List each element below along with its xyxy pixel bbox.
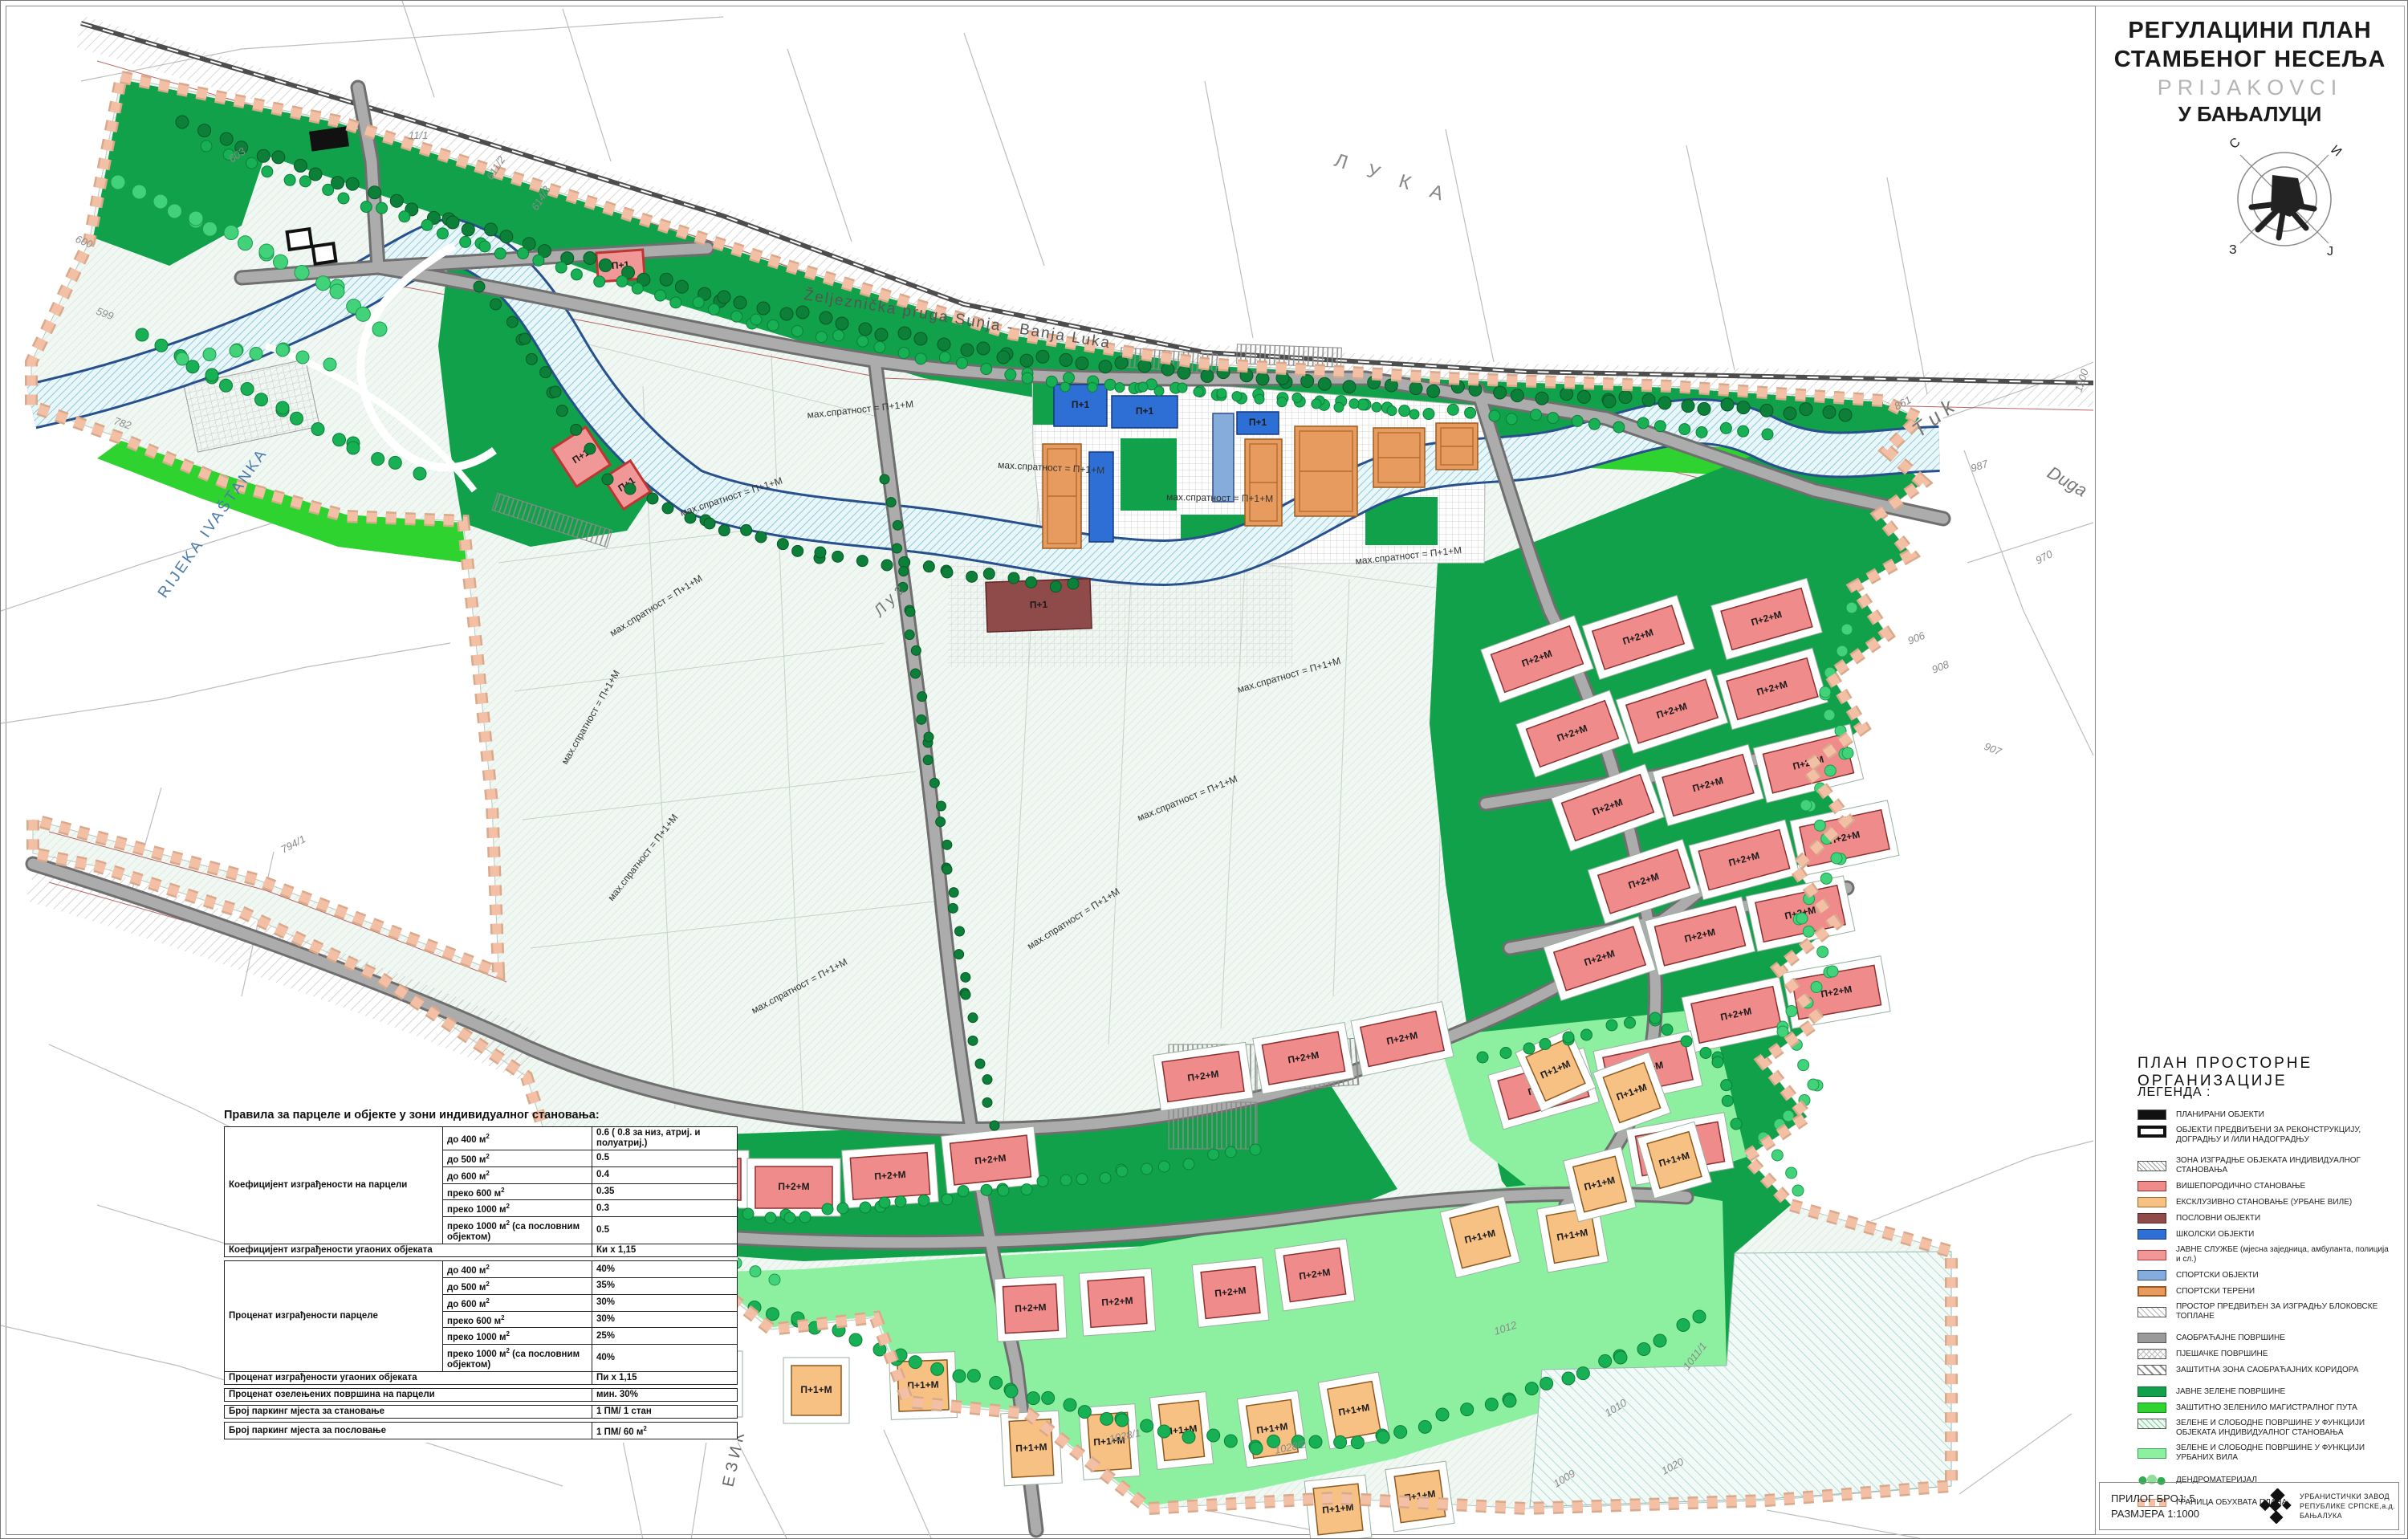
tree-symbol	[1658, 397, 1671, 409]
tree-symbol	[1548, 413, 1559, 424]
tree-symbol	[1525, 1382, 1538, 1395]
svg-text:Ј: Ј	[2327, 245, 2333, 259]
svg-text:И: И	[2328, 143, 2344, 159]
tree-symbol	[1117, 1166, 1128, 1177]
tree-symbol	[1256, 373, 1269, 385]
tree-symbol	[1737, 401, 1750, 414]
attribution-box: ПРИЛОГ БРОЈ: 5 РАЗМЈЕРА 1:1000 УРБАНИСТИ…	[2099, 1482, 2399, 1530]
tree-symbol	[1803, 926, 1814, 937]
svg-text:П+2+М: П+2+М	[778, 1181, 809, 1192]
tree-symbol	[660, 273, 673, 286]
tree-symbol	[923, 561, 934, 572]
tree-symbol	[241, 383, 254, 396]
tree-symbol	[914, 332, 927, 345]
tree-symbol	[1377, 1431, 1389, 1443]
tree-symbol	[1064, 1399, 1076, 1411]
svg-text:П+1: П+1	[1072, 399, 1090, 410]
tree-symbol	[836, 317, 848, 330]
tree-symbol	[949, 888, 958, 898]
tree-symbol	[1649, 1012, 1661, 1024]
tree-symbol	[1099, 360, 1112, 373]
tree-symbol	[490, 299, 502, 310]
legend: ПЛАНИРАНИ ОБЈЕКТИОБЈЕКТИ ПРЕДВИЂЕНИ ЗА Р…	[2138, 1109, 2394, 1513]
tree-symbol	[1349, 399, 1359, 409]
tree-symbol	[755, 531, 767, 543]
tree-symbol	[1489, 410, 1500, 421]
legend-label: ЗАШТИТНО ЗЕЛЕНИЛО МАГИСТРАЛНОГ ПУТА	[2176, 1403, 2357, 1413]
tree-symbol	[1309, 1435, 1322, 1448]
svg-text:С: С	[2227, 136, 2243, 152]
tree-symbol	[1677, 1319, 1690, 1332]
tree-symbol	[1060, 382, 1070, 392]
tree-symbol	[820, 311, 832, 324]
map-label: 794/1	[279, 833, 307, 856]
tree-symbol	[784, 1212, 795, 1223]
tree-symbol	[1800, 403, 1812, 416]
map-label: 907	[1983, 740, 2003, 758]
tree-symbol	[1208, 1149, 1219, 1160]
tree-symbol	[1312, 399, 1321, 409]
rules-table-title: Правила за парцеле и објекте у зони инди…	[224, 1109, 738, 1122]
tree-symbol	[479, 241, 490, 252]
tree-symbol	[1158, 1161, 1169, 1172]
compass-rose-icon: С И Ј З	[2216, 127, 2353, 271]
tree-symbol	[246, 157, 258, 169]
tree-symbol	[909, 1356, 921, 1369]
scale-label: РАЗМЈЕРА 1:1000	[2111, 1506, 2260, 1521]
tree-symbol	[1138, 360, 1151, 373]
tree-symbol	[413, 467, 426, 480]
legend-item-sport_obj: СПОРТСКИ ОБЈЕКТИ	[2138, 1270, 2394, 1280]
legend-swatch-public	[2138, 1250, 2166, 1260]
tree-symbol	[780, 307, 793, 320]
tree-symbol	[1178, 383, 1187, 393]
tree-symbol	[1820, 873, 1832, 884]
tree-symbol	[1786, 1006, 1797, 1017]
tree-symbol	[968, 1036, 978, 1045]
legend-label: ЕКСКЛУЗИВНО СТАНОВАЊЕ (УРБАНЕ ВИЛЕ)	[2176, 1198, 2352, 1207]
tree-symbol	[220, 132, 233, 145]
tree-symbol	[1178, 366, 1190, 379]
tree-symbol	[708, 303, 719, 315]
tree-symbol	[1540, 1039, 1551, 1050]
tree-symbol	[555, 262, 567, 273]
tree-symbol	[942, 1194, 953, 1205]
tree-symbol	[1700, 1048, 1711, 1059]
tree-symbol	[1606, 1020, 1617, 1031]
tree-symbol	[1036, 350, 1049, 363]
tree-symbol	[220, 379, 233, 392]
tree-symbol	[1738, 425, 1749, 437]
building-villa: П+1+М	[1304, 1475, 1372, 1539]
tree-symbol	[1721, 398, 1734, 411]
legend-swatch-zone_indiv	[2138, 1161, 2166, 1171]
tree-symbol	[1104, 379, 1116, 390]
tree-symbol	[1712, 1057, 1723, 1068]
tree-symbol	[168, 204, 182, 218]
tree-symbol	[1201, 369, 1214, 382]
tree-symbol	[1318, 377, 1331, 390]
tree-symbol	[1500, 1048, 1511, 1059]
tree-symbol	[990, 1121, 999, 1130]
tree-symbol	[893, 544, 902, 553]
rules-row: Коефицијент изграђености угаоних објекат…	[225, 1244, 738, 1257]
tree-symbol	[1100, 1412, 1113, 1425]
tree-symbol	[390, 194, 403, 207]
rules-row: Проценат изграђености парцеледо 400 м240…	[225, 1261, 738, 1278]
tree-symbol	[898, 348, 909, 359]
svg-text:П+1+М: П+1+М	[907, 1378, 939, 1390]
tree-symbol	[1423, 409, 1434, 420]
map-label: 11/1	[409, 129, 428, 141]
tree-symbol	[1387, 406, 1397, 416]
tree-symbol	[485, 223, 498, 236]
tree-symbol	[1255, 394, 1264, 404]
svg-text:З: З	[2229, 243, 2237, 257]
tree-symbol	[955, 926, 965, 936]
map-label: 906	[1906, 629, 1927, 646]
tree-symbol	[1224, 1435, 1237, 1447]
tree-symbol	[1798, 1060, 1809, 1071]
tree-symbol	[1653, 1334, 1666, 1347]
legend-label: ЗАШТИТНА ЗОНА САОБРАЋАЈНИХ КОРИДОРА	[2176, 1366, 2358, 1375]
tree-symbol	[1301, 375, 1314, 388]
legend-swatch-green_villa	[2138, 1448, 2166, 1459]
tree-symbol	[961, 990, 970, 1000]
tree-symbol	[460, 236, 471, 247]
map-label: Л У К А	[1332, 149, 1454, 207]
plan-sheet: П+1П+1П+1П+1П+1П+1П+1П+2+МП+2+МП+2+МП+2+…	[0, 0, 2408, 1539]
urban-institute-logo-icon	[2260, 1488, 2293, 1524]
tree-symbol	[316, 276, 331, 291]
tree-symbol	[741, 524, 752, 535]
svg-text:П+1+М: П+1+М	[800, 1384, 832, 1395]
tree-symbol	[937, 801, 946, 811]
building-multi: П+2+М	[1783, 956, 1890, 1028]
legend-swatch-school	[2138, 1229, 2166, 1240]
legend-label: ЗЕЛЕНЕ И СЛОБОДНЕ ПОВРШИНЕ У ФУНКЦИЈИ УР…	[2176, 1443, 2394, 1463]
tree-symbol	[1760, 404, 1773, 417]
tree-symbol	[224, 226, 238, 240]
tree-symbol	[833, 330, 844, 341]
map-label: 908	[1930, 658, 1951, 675]
tree-symbol	[257, 149, 270, 162]
tree-symbol	[1503, 1394, 1516, 1407]
legend-item-public: ЈАВНЕ СЛУЖБЕ (мјесна заједница, амбулант…	[2138, 1245, 2394, 1264]
tree-symbol	[918, 1195, 929, 1206]
legend-item-multi: ВИШЕПОРОДИЧНО СТАНОВАЊЕ	[2138, 1181, 2394, 1191]
legend-swatch-traffic	[2138, 1333, 2166, 1343]
tree-symbol	[1026, 576, 1037, 588]
tree-symbol	[1693, 1310, 1706, 1323]
tree-symbol	[1642, 393, 1655, 406]
tree-symbol	[176, 116, 189, 128]
tree-symbol	[1619, 391, 1632, 404]
tree-symbol	[518, 248, 529, 259]
tree-symbol	[1008, 572, 1019, 584]
tree-symbol	[1465, 407, 1476, 418]
tree-symbol	[1485, 1398, 1498, 1411]
tree-symbol	[911, 669, 921, 678]
tree-symbol	[203, 222, 218, 236]
tree-symbol	[948, 903, 958, 913]
svg-text:П+2+М: П+2+М	[874, 1169, 906, 1183]
tree-symbol	[594, 276, 605, 287]
tree-symbol	[895, 1196, 906, 1207]
tree-symbol	[1588, 418, 1600, 430]
legend-swatch-exclusive	[2138, 1197, 2166, 1207]
tree-symbol	[981, 364, 992, 375]
legend-swatch-green_public	[2138, 1386, 2166, 1397]
tree-symbol	[1792, 1185, 1804, 1196]
tree-symbol	[599, 259, 612, 271]
tree-symbol	[1060, 353, 1072, 366]
building-court	[1245, 439, 1282, 526]
legend-item-pedestrian: ПЈЕШАЧКЕ ПОВРШИНЕ	[2138, 1349, 2394, 1359]
legend-item-exclusive: ЕКСКЛУЗИВНО СТАНОВАЊЕ (УРБАНЕ ВИЛЕ)	[2138, 1197, 2394, 1207]
tree-symbol	[1078, 1406, 1091, 1419]
tree-symbol	[1068, 578, 1079, 589]
legend-label: ПОСЛОВНИ ОБЈЕКТИ	[2176, 1214, 2260, 1223]
building-multi: П+2+М	[1079, 1268, 1155, 1336]
legend-label: ПРОСТОР ПРЕДВИЂЕН ЗА ИЗГРАДЊУ БЛОКОВСКЕ …	[2176, 1302, 2394, 1321]
tree-symbol	[1762, 429, 1773, 440]
tree-symbol	[1042, 1391, 1055, 1404]
tree-symbol	[859, 323, 872, 336]
tree-symbol	[1154, 386, 1164, 396]
tree-symbol	[1138, 382, 1148, 392]
tree-symbol	[311, 423, 324, 436]
svg-text:П+2+М: П+2+М	[1015, 1301, 1047, 1314]
tree-symbol	[1796, 913, 1808, 924]
tree-symbol	[272, 151, 285, 164]
tree-symbol	[584, 252, 596, 265]
tree-symbol	[376, 202, 388, 214]
tree-symbol	[757, 302, 770, 315]
tree-symbol	[201, 140, 212, 152]
tree-symbol	[1115, 356, 1128, 369]
tree-symbol	[571, 424, 582, 435]
tree-symbol	[519, 333, 531, 344]
plan-title-line4: У БАЊАЛУЦИ	[2110, 101, 2390, 128]
tree-symbol	[632, 283, 643, 294]
legend-label: ЗЕЛЕНЕ И СЛОБОДНЕ ПОВРШИНЕ У ФУНКЦИЈИ ОБ…	[2176, 1419, 2365, 1438]
tree-symbol	[791, 325, 803, 336]
tree-symbol	[1842, 747, 1853, 759]
tree-symbol	[205, 368, 218, 381]
map-label: 970	[2033, 548, 2055, 567]
tree-symbol	[153, 194, 168, 209]
tree-symbol	[942, 865, 952, 874]
legend-label: ПЈЕШАЧКЕ ПОВРШИНЕ	[2176, 1350, 2268, 1359]
tree-symbol	[291, 412, 303, 425]
tree-symbol	[1625, 1017, 1636, 1028]
tree-symbol	[961, 972, 970, 982]
tree-symbol	[982, 1097, 992, 1107]
title-block: РЕГУЛАЦИНИ ПЛАН СТАМБЕНОГ НЕСЕЉА PRIJAKO…	[2110, 16, 2390, 128]
rules-row: Проценат озелењених површина на парцелим…	[225, 1389, 738, 1402]
tree-symbol	[1232, 392, 1242, 401]
tree-symbol	[1088, 382, 1097, 392]
tree-symbol	[905, 630, 914, 640]
svg-text:П+1: П+1	[1030, 599, 1048, 611]
tree-symbol	[1037, 1175, 1048, 1187]
tree-symbol	[967, 1370, 980, 1382]
legend-item-traffic: САОБРАЋАЈНЕ ПОВРШИНЕ	[2138, 1333, 2394, 1343]
tree-symbol	[1343, 381, 1356, 393]
legend-label: ВИШЕПОРОДИЧНО СТАНОВАЊЕ	[2176, 1182, 2305, 1191]
tree-symbol	[230, 344, 242, 357]
tree-symbol	[1277, 397, 1287, 407]
tree-symbol	[1654, 421, 1666, 432]
map-label: мах.спратност = П+1+М	[1166, 491, 1273, 504]
tree-symbol	[556, 405, 567, 417]
legend-label: ШКОЛСКИ ОБЈЕКТИ	[2176, 1230, 2254, 1240]
tree-symbol	[647, 493, 658, 504]
tree-symbol	[1477, 1052, 1488, 1063]
legend-item-green_magistral: ЗАШТИТНО ЗЕЛЕНИЛО МАГИСТРАЛНОГ ПУТА	[2138, 1403, 2394, 1413]
tree-symbol	[704, 518, 715, 529]
legend-label: САОБРАЋАЈНЕ ПОВРШИНЕ	[2176, 1333, 2285, 1343]
tree-symbol	[262, 166, 273, 177]
tree-symbol	[1141, 1419, 1153, 1432]
tree-symbol	[1250, 1442, 1263, 1455]
tree-symbol	[750, 314, 762, 325]
tree-symbol	[1506, 413, 1517, 425]
tree-symbol	[296, 351, 309, 364]
building-multi: П+2+М	[1192, 1258, 1269, 1328]
tree-symbol	[1494, 386, 1507, 399]
tree-symbol	[372, 453, 384, 466]
tree-symbol	[977, 342, 990, 355]
tree-symbol	[1577, 390, 1590, 403]
legend-item-green_indiv: ЗЕЛЕНЕ И СЛОБОДНЕ ПОВРШИНЕ У ФУНКЦИЈИ ОБ…	[2138, 1419, 2394, 1438]
tree-symbol	[998, 1185, 1009, 1196]
tree-symbol	[1418, 1420, 1431, 1433]
tree-symbol	[899, 567, 909, 576]
legend-swatch-sport_ground	[2138, 1286, 2166, 1297]
svg-text:П+1: П+1	[1249, 417, 1267, 428]
tree-symbol	[399, 211, 410, 222]
plan-title-line1: РЕГУЛАЦИНИ ПЛАН	[2110, 16, 2390, 45]
tree-symbol	[1046, 376, 1057, 387]
tree-symbol	[966, 571, 978, 582]
tree-symbol	[368, 186, 381, 199]
tree-symbol	[1603, 395, 1616, 408]
tree-symbol	[1183, 1158, 1194, 1170]
tree-symbol	[1786, 1167, 1797, 1179]
tree-symbol	[1116, 1414, 1129, 1427]
tree-symbol	[939, 352, 950, 363]
tree-symbol	[276, 344, 289, 356]
legend-label: ОБЈЕКТИ ПРЕДВИЂЕНИ ЗА РЕКОНСТРУКЦИЈУ, ДО…	[2176, 1126, 2361, 1145]
tree-symbol	[1523, 1043, 1535, 1054]
tree-symbol	[942, 567, 953, 578]
map-label: Duga	[2044, 462, 2091, 501]
tree-symbol	[1076, 357, 1088, 370]
building-multi: П+2+М	[1275, 1239, 1355, 1311]
tree-symbol	[1182, 1431, 1195, 1443]
tree-symbol	[299, 176, 311, 187]
tree-symbol	[1207, 1429, 1220, 1442]
tree-symbol	[203, 348, 216, 361]
tree-symbol	[616, 276, 628, 287]
tree-symbol	[462, 223, 474, 236]
tree-symbol	[284, 174, 295, 185]
tree-symbol	[875, 328, 888, 341]
building-multi: П+2+М	[942, 1126, 1040, 1194]
tree-symbol	[1409, 409, 1419, 419]
legend-label: ЈАВНЕ СЛУЖБЕ (мјесна заједница, амбулант…	[2176, 1245, 2394, 1264]
tree-symbol	[526, 353, 537, 364]
tree-symbol	[132, 185, 147, 199]
legend-item-green_villa: ЗЕЛЕНЕ И СЛОБОДНЕ ПОВРШИНЕ У ФУНКЦИЈИ УР…	[2138, 1443, 2394, 1463]
tree-symbol	[1696, 426, 1707, 438]
tree-symbol	[938, 338, 950, 351]
tree-symbol	[1461, 1403, 1474, 1416]
tree-symbol	[347, 442, 360, 454]
building-villa: П+1+М	[783, 1358, 849, 1423]
legend-swatch-planned	[2138, 1109, 2166, 1120]
tree-symbol	[1021, 1184, 1032, 1195]
tree-symbol	[670, 297, 681, 308]
legend-item-planned: ПЛАНИРАНИ ОБЈЕКТИ	[2138, 1109, 2394, 1120]
tree-symbol	[1808, 1079, 1819, 1090]
tree-symbol	[1824, 710, 1835, 721]
tree-symbol	[1720, 422, 1731, 434]
tree-symbol	[1811, 982, 1822, 993]
tree-symbol	[997, 351, 1010, 364]
tree-symbol	[899, 556, 910, 568]
svg-text:П+1+М: П+1+М	[1015, 1441, 1047, 1454]
tree-symbol	[1225, 1146, 1236, 1158]
tree-symbol	[718, 291, 730, 303]
tree-symbol	[1027, 1392, 1039, 1405]
tree-symbol	[856, 556, 868, 567]
tree-symbol	[849, 1333, 862, 1346]
tree-symbol	[1334, 1435, 1347, 1448]
tree-symbol	[822, 1203, 833, 1215]
tree-symbol	[624, 483, 636, 495]
tree-symbol	[1157, 1425, 1170, 1438]
tree-symbol	[1351, 1436, 1364, 1449]
tree-symbol	[388, 456, 401, 469]
tree-symbol	[571, 269, 582, 280]
tree-symbol	[1572, 415, 1583, 426]
tree-symbol	[1827, 966, 1838, 977]
legend-swatch-recon	[2138, 1126, 2166, 1138]
legend-swatch-corridor	[2138, 1365, 2166, 1375]
tree-symbol	[1436, 1408, 1449, 1421]
tree-symbol	[1783, 1110, 1794, 1122]
tree-symbol	[1536, 392, 1548, 405]
building-sport_obj	[1213, 413, 1234, 502]
tree-symbol	[777, 539, 788, 550]
tree-symbol	[238, 236, 253, 250]
tree-symbol	[1562, 1372, 1575, 1385]
tree-symbol	[796, 306, 809, 319]
tree-symbol	[540, 367, 551, 378]
tree-symbol	[1447, 404, 1458, 415]
legend-title: ЛЕГЕНДА :	[2138, 1085, 2211, 1100]
tree-symbol	[1511, 389, 1523, 402]
legend-item-school: ШКОЛСКИ ОБЈЕКТИ	[2138, 1229, 2394, 1240]
tree-symbol	[693, 297, 704, 308]
tree-symbol	[1560, 388, 1573, 401]
legend-item-business: ПОСЛОВНИ ОБЈЕКТИ	[2138, 1213, 2394, 1223]
tree-symbol	[584, 443, 596, 454]
tree-symbol	[1831, 853, 1842, 864]
